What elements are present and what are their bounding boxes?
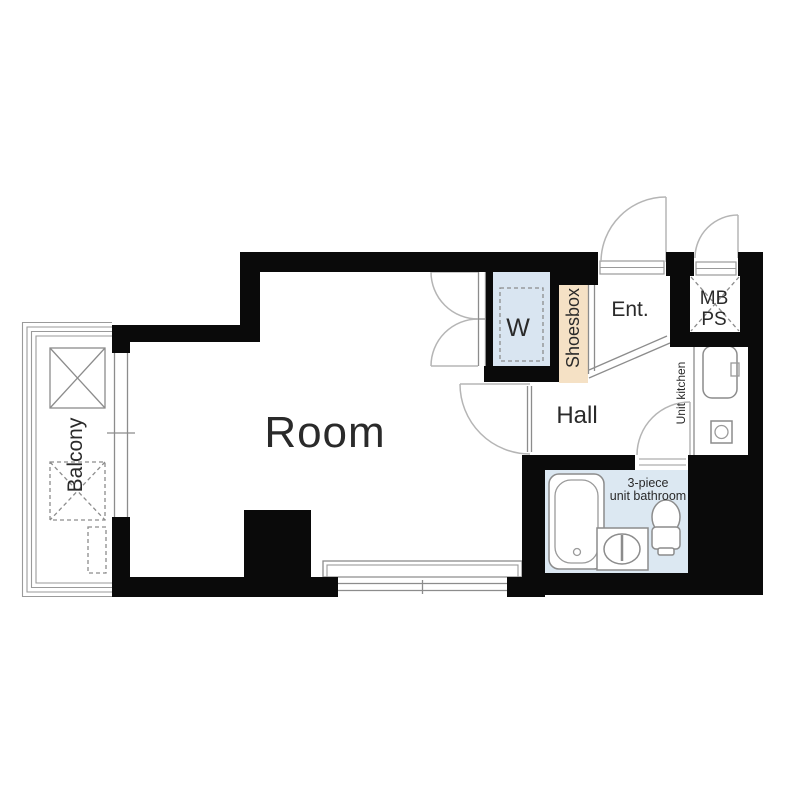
- bathroom-label-line1: 3-piece: [628, 476, 669, 490]
- balcony-label: Balcony: [64, 417, 87, 492]
- wall-left-upper: [112, 325, 130, 353]
- toilet-base: [658, 548, 674, 555]
- wall-mbps-bottom: [673, 332, 763, 347]
- pipe-shaft-label: PS: [701, 309, 726, 330]
- wall-closet-bottom: [484, 366, 559, 382]
- wall-closet-left: [486, 271, 493, 382]
- floor-plan-canvas: Room Hall Ent. W MB PS Shoesbox Unit kit…: [0, 0, 800, 800]
- toilet-tank: [652, 527, 680, 549]
- entrance-door-arc: [601, 197, 666, 262]
- shoesbox-label: Shoesbox: [563, 288, 583, 368]
- meter-box-label: MB: [700, 288, 729, 309]
- unit-kitchen-label: Unit kitchen: [674, 362, 688, 425]
- bathroom-label-line2: unit bathroom: [610, 489, 686, 503]
- closet-label: W: [506, 314, 530, 342]
- hall-label: Hall: [556, 402, 597, 429]
- wall-closet-right: [550, 271, 559, 382]
- entrance-step-line: [589, 343, 670, 378]
- entrance-step-line: [589, 336, 667, 370]
- window-sill: [323, 561, 522, 577]
- closet-door-arc-lower: [431, 319, 478, 366]
- closet-door-arc-upper: [431, 272, 478, 319]
- wall-pillar: [244, 510, 311, 597]
- wall-kitchen-right: [748, 337, 763, 455]
- floor-plan-drawing: Room Hall Ent. W MB PS Shoesbox Unit kit…: [0, 0, 800, 800]
- wall-between-doors: [666, 252, 694, 276]
- entrance-label: Ent.: [611, 298, 648, 321]
- room-label: Room: [264, 408, 385, 457]
- wall-bathroom-bottom: [522, 573, 688, 595]
- window-sill-inner: [327, 565, 518, 577]
- kitchen-sink: [703, 346, 737, 398]
- wall-bathroom-top: [545, 455, 635, 470]
- wall-step-horizontal: [112, 325, 260, 342]
- drain-dashed-box: [88, 527, 106, 573]
- stove: [711, 421, 732, 443]
- room-door-arc: [460, 384, 530, 454]
- mbps-door-arc: [695, 215, 738, 258]
- wall-top: [240, 252, 598, 272]
- wall-corner-block: [688, 455, 763, 595]
- wall-mbps-right: [740, 252, 763, 337]
- wall-shoesbox-top: [555, 252, 598, 285]
